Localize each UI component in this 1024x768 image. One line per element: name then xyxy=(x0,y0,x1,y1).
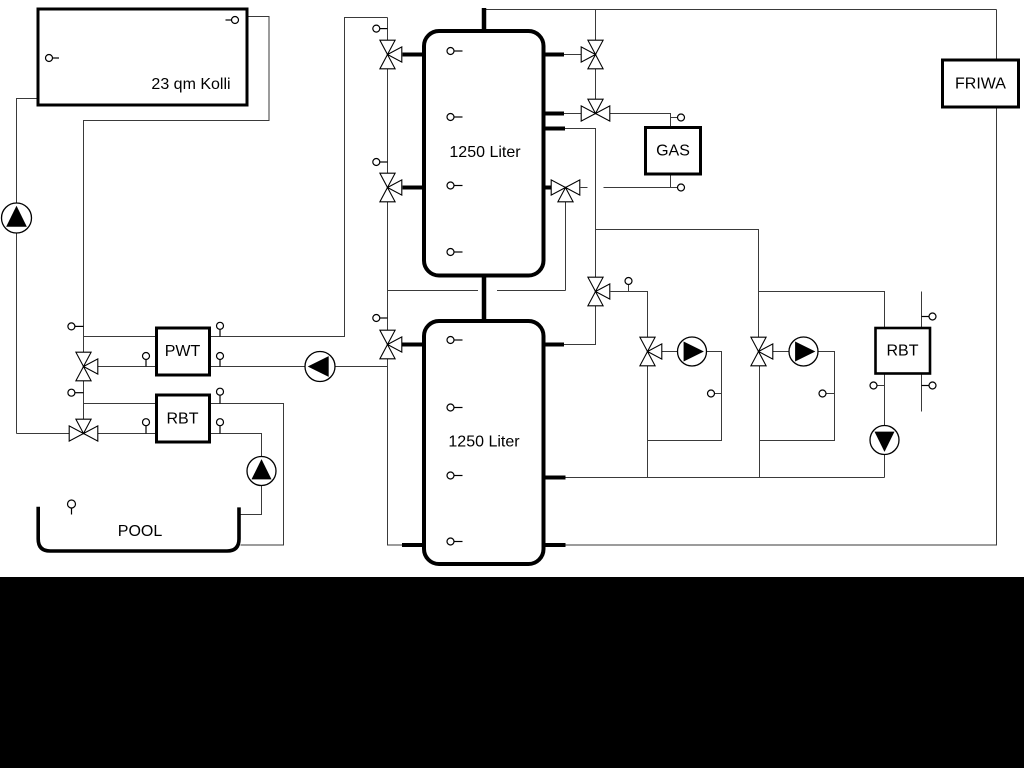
svg-text:23 qm Kolli: 23 qm Kolli xyxy=(151,76,230,93)
svg-text:GAS: GAS xyxy=(656,143,690,160)
svg-text:PWT: PWT xyxy=(165,343,201,360)
svg-text:1250 Liter: 1250 Liter xyxy=(449,144,521,161)
svg-text:RBT: RBT xyxy=(167,411,199,428)
svg-text:FRIWA: FRIWA xyxy=(955,76,1006,93)
svg-text:RBT: RBT xyxy=(887,343,919,360)
svg-text:POOL: POOL xyxy=(118,523,163,540)
svg-text:1250 Liter: 1250 Liter xyxy=(448,434,520,451)
